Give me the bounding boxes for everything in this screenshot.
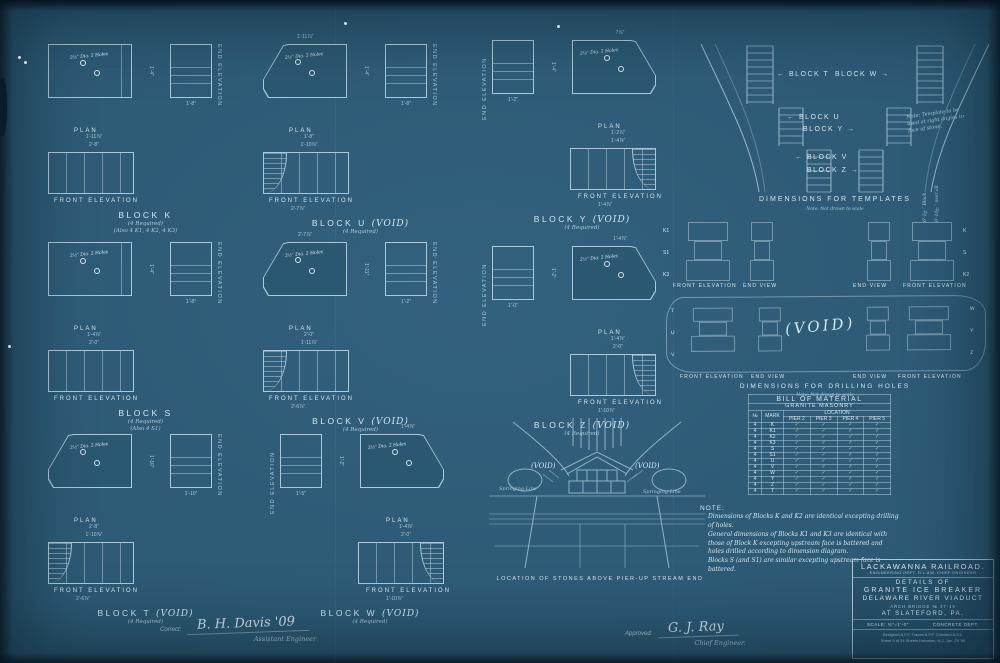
block-panel-w: 1'-4⅞″ 2½″ Dia. 2 Holes 1'-2″ 1'-5″ END … — [270, 424, 470, 626]
front-elevation-view — [570, 354, 656, 396]
dimension-label: 1'-4⅞″ — [364, 524, 448, 532]
end-elevation-label: END ELEVATION — [216, 434, 222, 514]
block-name: BLOCK K — [118, 210, 172, 220]
plan-view: 2½″ Dia. 2 Holes — [48, 44, 132, 98]
end-elevation-label: END ELEVATION — [482, 246, 488, 326]
dimension-label: 1'-4″ — [148, 264, 154, 274]
block-panel-s: 2½″ Dia. 2 Holes 1'-4″ 1'-8″ END ELEVATI… — [48, 232, 243, 433]
plan-view: 2½″ Dia. 2 Holes — [360, 434, 444, 488]
end-elevation-view — [385, 44, 427, 98]
front-elevation-label: FRONT ELEVATION — [366, 588, 470, 594]
template-label-block-w: BLOCK W — [835, 71, 890, 78]
plan-view: 2½″ Dia. 2 Holes — [263, 242, 347, 296]
bom-cell: ✓ — [784, 489, 811, 495]
dimension-label — [48, 34, 132, 42]
end-elevation-view — [492, 40, 534, 94]
dimension-label: 1'-2″ — [508, 97, 518, 103]
correct-label: Correct: — [160, 627, 181, 633]
view-caption: FRONT ELEVATION — [903, 283, 967, 289]
front-elevation-view — [48, 542, 134, 584]
mark-label: Y — [970, 328, 973, 334]
dimension-label: 1'-10″ — [148, 455, 154, 468]
mark-label: U — [671, 330, 675, 336]
bill-of-material-table: BILL OF MATERIAL GRANITE MASONRY № MARK … — [748, 394, 891, 495]
bom-row: 4 T ✓ ✓ ✓ ✓ — [749, 489, 891, 495]
dimension-label: 1'-0″ — [508, 303, 518, 309]
dimension-label: 1'-4⅞″ — [576, 138, 660, 146]
dimension-label: 1'-5″ — [296, 491, 306, 497]
bom-subtitle: GRANITE MASONRY — [749, 404, 891, 411]
dimension-label: 2'-6⅞″ — [291, 404, 458, 410]
block-panel-v: 2'-7⅞″ 2½″ Dia. 2 Holes 1'-11″ 1'-2″ END… — [263, 232, 458, 434]
template-label-block-v: BLOCK V — [795, 154, 848, 161]
drawing-scale: SCALE: ¾″=1'-0″ — [867, 622, 909, 627]
drill-hole-icon — [80, 449, 86, 455]
holes-annotation: 2½″ Dia. 2 Holes — [580, 48, 619, 57]
correct-title: Assistant Engineer — [160, 635, 410, 643]
mark-label: S1 — [663, 250, 669, 256]
view-caption: FRONT ELEVATION — [680, 374, 744, 380]
mark-label: K — [963, 228, 966, 234]
view-caption: FRONT ELEVATION — [673, 283, 737, 289]
dimension-label — [48, 232, 132, 240]
holes-annotation: 2½″ Dia. 2 Holes — [70, 442, 109, 451]
dimension-label: 7⅞″ — [578, 30, 662, 38]
drill-hole-icon — [295, 257, 301, 263]
paper-tear — [0, 78, 7, 136]
drill-hole-icon — [80, 60, 86, 66]
end-elevation-view — [385, 242, 427, 296]
end-elevation-label: END ELEVATION — [270, 434, 276, 514]
end-elevation-view — [170, 242, 212, 296]
dimension-label: 2'-8″ — [52, 142, 136, 150]
bom-cell: ✓ — [810, 489, 837, 495]
stones-location-diagram: (VOID) (VOID) Springing Line Springing L… — [485, 418, 715, 596]
paper-speck — [18, 56, 21, 59]
void-note: (VOID) — [531, 462, 556, 470]
dimension-label: 2'-7⅞″ — [291, 206, 458, 212]
end-elevation-label: END ELEVATION — [216, 44, 222, 124]
front-elevation-label: FRONT ELEVATION — [269, 396, 458, 402]
bill-of-material: BILL OF MATERIAL GRANITE MASONRY № MARK … — [748, 394, 891, 495]
engineering-dept: ENGINEERING DEPT. D.L.&W. CHIEF ENGINEER — [853, 571, 993, 578]
view-caption: END VIEW — [853, 283, 887, 289]
dimension-label: 1'-8″ — [186, 101, 196, 107]
stones-caption: LOCATION OF STONES ABOVE PIER-UP STREAM … — [475, 576, 725, 582]
dimension-label: 1'-4″ — [363, 66, 369, 76]
approved-title: Chief Engineer. — [625, 639, 815, 647]
end-elevation-view — [170, 44, 212, 98]
block-title: BLOCK S — [48, 408, 243, 419]
dimension-label: 2'-0″ — [576, 344, 660, 352]
front-elevation-view — [263, 152, 349, 194]
end-elevation-label: END ELEVATION — [431, 242, 437, 322]
department: CONCRETE DEPT. — [933, 622, 979, 627]
block-panel-k: 2½″ Dia. 2 Holes 1'-4″ 1'-8″ END ELEVATI… — [48, 34, 243, 235]
dimension-label: 1'-11⅞″ — [263, 34, 347, 42]
scale-row: SCALE: ¾″=1'-0″ CONCRETE DEPT. — [853, 620, 993, 630]
dimension-label — [48, 424, 132, 432]
front-elevation-label: FRONT ELEVATION — [54, 198, 243, 204]
holes-annotation: 2½″ Dia. 2 Holes — [368, 442, 407, 451]
title-block: LACKAWANNA RAILROAD. ENGINEERING DEPT. D… — [852, 559, 994, 659]
dimension-label: 1'-4⅞″ — [52, 332, 136, 340]
bom-col-mark: MARK — [762, 411, 784, 423]
dimension-labels: 2'-0″1'-11⅞″ — [267, 332, 351, 347]
dimension-label: 2'-8″ — [52, 524, 136, 532]
dimension-labels: 1'-2⅞″1'-4⅞″ — [576, 130, 660, 145]
templates-caption: DIMENSIONS FOR TEMPLATES — [725, 196, 945, 203]
view-caption: END VIEW — [853, 374, 887, 380]
dimension-label: 1'-2⅞″ — [576, 130, 660, 138]
dimension-labels: 2'-8″1'-10⅞″ — [52, 524, 136, 539]
blueprint-sheet: 2½″ Dia. 2 Holes 1'-4″ 1'-8″ END ELEVATI… — [0, 0, 1000, 663]
mark-label: T — [671, 308, 674, 314]
drill-hole-icon — [94, 70, 100, 76]
block-title: BLOCK U (VOID) — [263, 218, 458, 229]
required-note: (4 Required) — [482, 225, 682, 232]
paper-speck — [24, 61, 27, 64]
railroad-name: LACKAWANNA RAILROAD. — [853, 560, 993, 571]
paper-speck — [8, 345, 11, 348]
plan-view: 2½″ Dia. 2 Holes — [48, 434, 132, 488]
drill-hole-icon — [295, 59, 301, 65]
block-name: BLOCK Y — [534, 214, 588, 224]
view-caption: END VIEW — [751, 374, 785, 380]
end-elevation-view — [280, 434, 322, 488]
dimension-label: 1'-8″ — [186, 299, 196, 305]
block-name: BLOCK T — [98, 608, 152, 618]
note-line: Dimensions of Blocks K and K2 are identi… — [708, 513, 900, 530]
block-panel-y: 7⅞″ 2½″ Dia. 2 Holes 1'-4″ 1'-2″ END ELE… — [482, 30, 682, 232]
dimension-label: 1'-10⅞″ — [267, 142, 351, 150]
template-label-block-z: BLOCK Z — [807, 167, 859, 174]
dimension-label: 2'-0″ — [364, 532, 448, 540]
approved-signature-script: G. J. Ray — [658, 619, 738, 639]
note-label: NOTE: — [700, 505, 725, 512]
block-title: BLOCK Y (VOID) — [482, 214, 682, 225]
drilling-caption: DIMENSIONS FOR DRILLING HOLES — [660, 383, 990, 390]
front-elevation-view — [48, 350, 134, 392]
dimension-label: 2'-0″ — [267, 332, 351, 340]
mark-label: W — [970, 306, 975, 312]
templates-diagram: BLOCK T BLOCK W BLOCK U BLOCK Y BLOCK V … — [695, 40, 997, 232]
front-elevation-label: FRONT ELEVATION — [269, 198, 458, 204]
holes-annotation: 2½″ Dia. 2 Holes — [285, 52, 324, 61]
end-elevation-view — [492, 246, 534, 300]
drill-hole-icon — [406, 460, 412, 466]
void-blocks-outline: T U V (VOID) W Y Z — [666, 295, 987, 373]
dimension-labels: 1'-8″1'-10⅞″ — [267, 134, 351, 149]
dimension-label: 1'-8″ — [401, 101, 411, 107]
void-note: (VOID) — [784, 314, 856, 339]
dimension-label: 1'-4″ — [550, 62, 556, 72]
holes-annotation: 2½″ Dia. 2 Holes — [70, 52, 109, 61]
front-elevation-label: FRONT ELEVATION — [54, 588, 243, 594]
bom-cell-mark: T — [762, 489, 784, 495]
front-elevation-view — [263, 350, 349, 392]
dimension-label: 1'-10⅞″ — [52, 532, 136, 540]
dimension-label: 1'-11⅞″ — [52, 134, 136, 142]
holes-annotation: 2½″ Dia. 2 Holes — [285, 250, 324, 259]
plan-view: 2½″ Dia. 2 Holes — [572, 246, 656, 300]
front-elevation-view — [358, 542, 444, 584]
drill-hole-icon — [604, 55, 610, 61]
front-elevation-label: FRONT ELEVATION — [54, 396, 243, 402]
dimension-label: 1'-4⅞″ — [366, 424, 450, 432]
bom-title: BILL OF MATERIAL — [749, 395, 891, 404]
dimension-label: 1'-11⅞″ — [267, 340, 351, 348]
drill-hole-icon — [309, 70, 315, 76]
springing-line-label: Springing Line — [643, 489, 681, 495]
void-note: (VOID) — [593, 215, 631, 225]
dimension-labels: 1'-4⅞″2'-0″ — [576, 336, 660, 351]
mark-label: Z — [970, 350, 973, 356]
drill-hole-icon — [392, 449, 398, 455]
dimension-label: 1'-10⅞″ — [598, 408, 682, 414]
drawing-subject2: DELAWARE RIVER VIADUCT — [853, 594, 993, 602]
dimension-labels: 1'-4⅞″2'-0″ — [364, 524, 448, 539]
mark-label: V — [671, 352, 674, 358]
dimension-label: 2'-6⅞″ — [76, 596, 243, 602]
springing-line-label: Springing Line — [499, 486, 537, 492]
drill-hole-icon — [618, 66, 624, 72]
dimension-label: 1'-11″ — [363, 263, 369, 275]
dimension-label: 1'-8″ — [267, 134, 351, 142]
bridge-number: ARCH BRIDGE № 27-19 — [853, 602, 993, 609]
bom-cell: ✓ — [864, 489, 891, 495]
template-label-block-u: BLOCK U — [787, 114, 840, 121]
approved-label: Approved: — [625, 631, 652, 637]
end-elevation-label: END ELEVATION — [216, 242, 222, 322]
bom-cell-no: 4 — [749, 489, 762, 495]
dimension-labels: 1'-4⅞″2'-0″ — [52, 332, 136, 347]
block-panel-u: 1'-11⅞″ 2½″ Dia. 2 Holes 1'-4″ 1'-8″ END… — [263, 34, 458, 236]
block-title: BLOCK K — [48, 210, 243, 221]
drill-hole-icon — [94, 460, 100, 466]
bom-cell: ✓ — [837, 489, 864, 495]
drill-hole-icon — [80, 258, 86, 264]
block-panel-t: 2½″ Dia. 2 Holes 1'-10″ 1'-10″ END ELEVA… — [48, 424, 243, 626]
plan-view: 2½″ Dia. 2 Holes — [48, 242, 132, 296]
paper-speck — [557, 25, 560, 28]
void-note: (VOID) — [372, 219, 410, 229]
mark-label: S — [963, 250, 966, 256]
end-elevation-view — [170, 434, 212, 488]
drafting-credits: Designed A.F.F. Traced A.F.F. Checked A.… — [853, 630, 993, 637]
dimension-label: 1'-4⅞″ — [578, 236, 662, 244]
correct-signature: Correct: B. H. Davis '09 Assistant Engin… — [160, 616, 410, 643]
template-label-block-y: BLOCK Y — [803, 126, 856, 133]
holes-annotation: 2½″ Dia. 2 Holes — [580, 254, 619, 263]
dimension-label: 1'-4⅞″ — [598, 202, 682, 208]
mark-label: K2 — [963, 272, 969, 278]
bom-col-no: № — [749, 411, 762, 423]
details-of: DETAILS OF — [853, 578, 993, 586]
template-label-block-t: BLOCK T — [777, 71, 829, 78]
approved-signature: Approved: G. J. Ray Chief Engineer. — [625, 620, 815, 647]
block-name: BLOCK U — [312, 218, 367, 228]
mark-label: K1 — [663, 228, 669, 234]
drilling-holes-diagram: K1 S1 K3 K S K2 FRONT ELEVATION END VIEW… — [655, 212, 995, 402]
block-name: BLOCK S — [118, 408, 172, 418]
dimension-label: 1'-10″ — [185, 491, 198, 497]
dimension-labels: 1'-11⅞″2'-8″ — [52, 134, 136, 149]
site-location: AT SLATEFORD, PA. — [853, 609, 993, 620]
dimension-label: 1'-2″ — [338, 456, 344, 466]
sheet-info: Sheet 9 of 24 Sheets Hoboken, N.J. Jan. … — [853, 637, 993, 643]
pier-arch-drawing — [485, 418, 715, 573]
holes-annotation: 2½″ Dia. 2 Holes — [70, 250, 109, 259]
view-caption: END VIEW — [743, 283, 777, 289]
view-caption: FRONT ELEVATION — [898, 374, 962, 380]
dimension-label: 1'-2″ — [550, 268, 556, 278]
dimension-label: 1'-4⅞″ — [576, 336, 660, 344]
dimension-label: 2'-7⅞″ — [263, 232, 347, 240]
dimension-label: 2'-0″ — [52, 340, 136, 348]
end-elevation-label: END ELEVATION — [482, 40, 488, 120]
drawing-subject: GRANITE ICE BREAKER — [853, 586, 993, 594]
paper-speck — [344, 22, 347, 25]
front-elevation-view — [48, 152, 134, 194]
note-line: General dimensions of Blocks K1 and K3 a… — [708, 531, 900, 556]
drill-hole-icon — [604, 261, 610, 267]
correct-signature-script: B. H. Davis '09 — [187, 614, 310, 635]
void-note: (VOID) — [635, 462, 660, 470]
dimension-label: 1'-10⅞″ — [386, 596, 470, 602]
front-elevation-view — [570, 148, 656, 190]
drill-hole-icon — [309, 268, 315, 274]
mark-label: K3 — [663, 272, 669, 278]
dimension-label: 1'-4″ — [148, 66, 154, 76]
front-elevation-label: FRONT ELEVATION — [578, 194, 682, 200]
end-elevation-label: END ELEVATION — [431, 44, 437, 124]
plan-view: 2½″ Dia. 2 Holes — [572, 40, 656, 94]
plan-view: 2½″ Dia. 2 Holes — [263, 44, 347, 98]
drill-hole-icon — [94, 268, 100, 274]
drill-hole-icon — [618, 272, 624, 278]
block-panel-z: 1'-4⅞″ 2½″ Dia. 2 Holes 1'-2″ 1'-0″ END … — [482, 236, 682, 438]
dimension-label: 1'-2″ — [401, 299, 411, 305]
